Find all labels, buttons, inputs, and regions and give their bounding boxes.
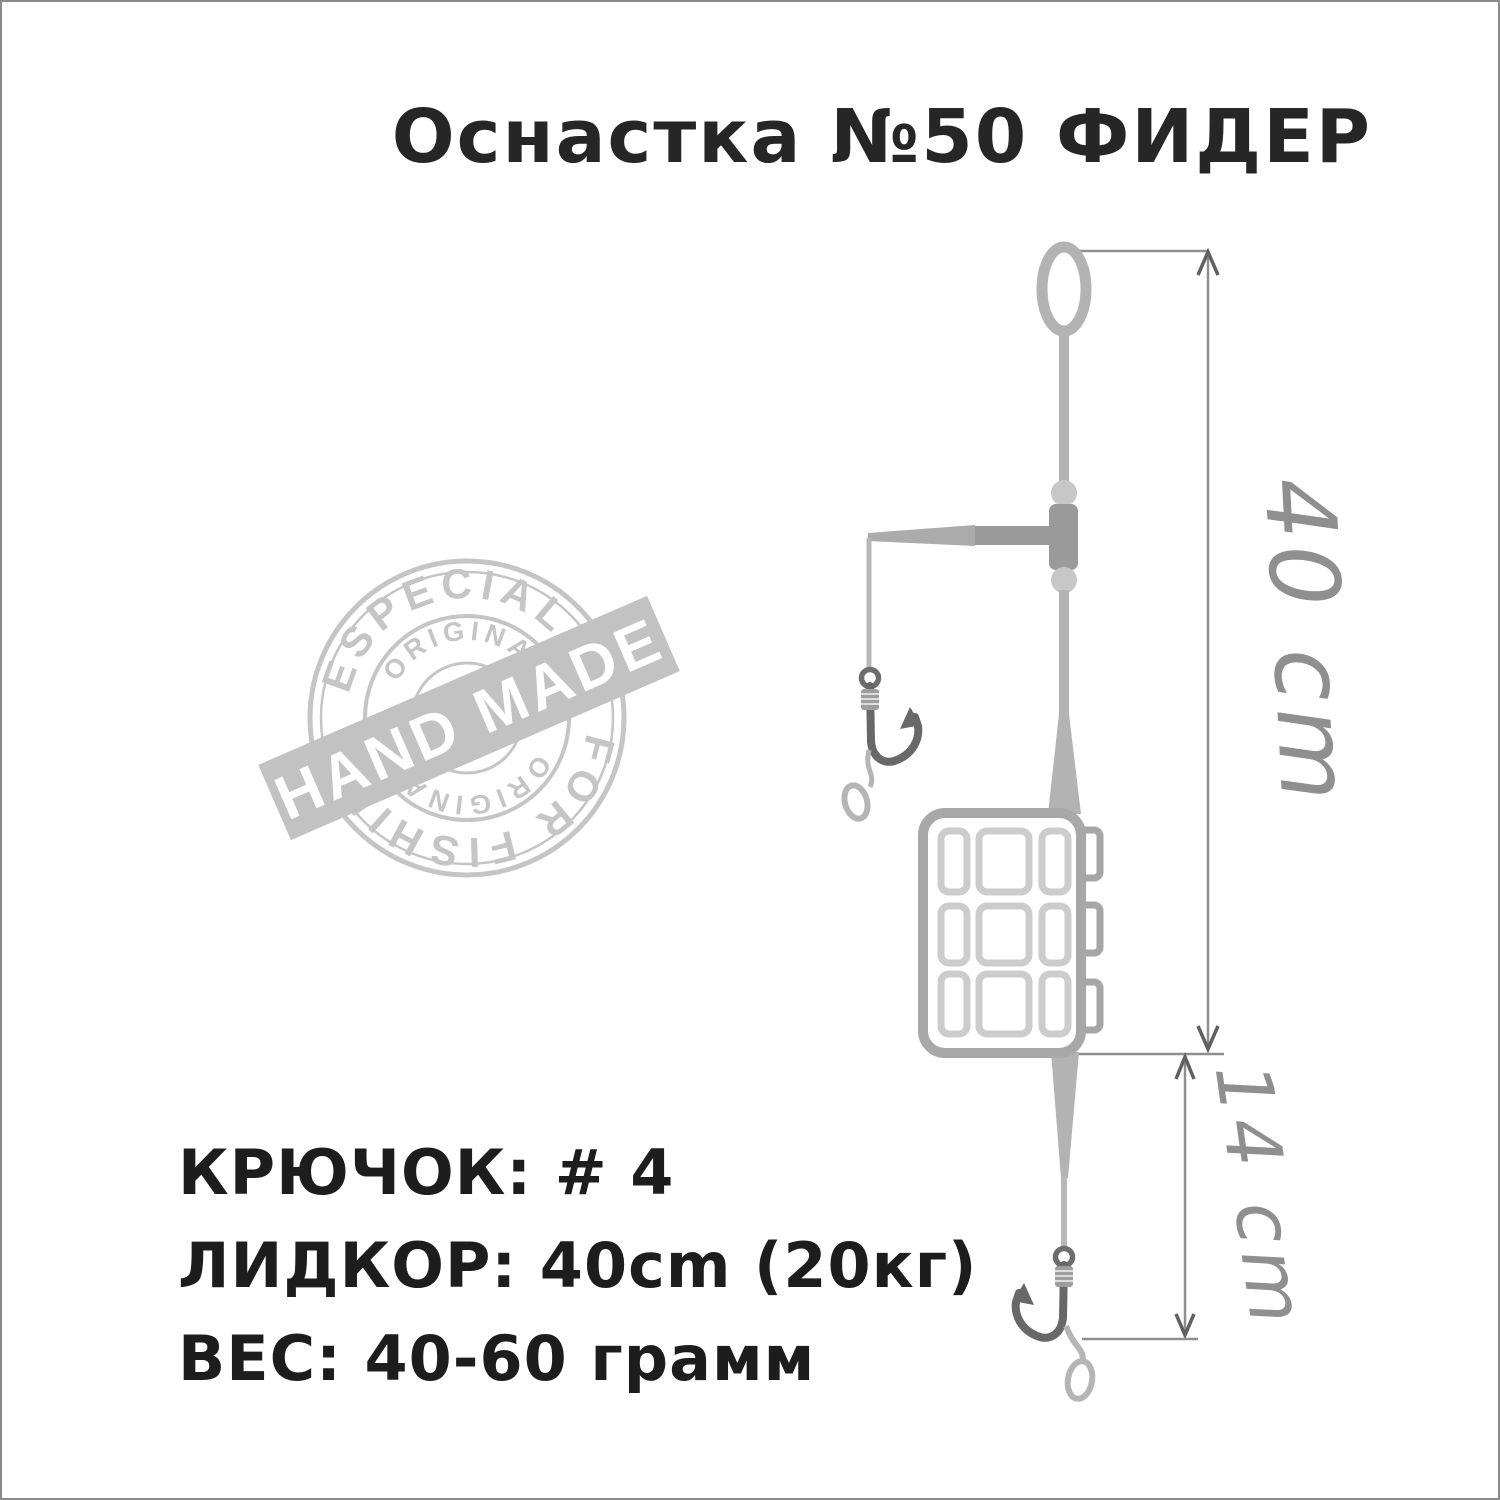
handmade-stamp: ESPECIALLY FOR FISHING ORIGINAL ORIGINAL… (258, 559, 680, 876)
stop-bead-upper (1051, 480, 1077, 506)
sleeve-upper (1048, 714, 1081, 814)
lower-hair (1066, 1326, 1083, 1362)
rig-diagram: ESPECIALLY FOR FISHING ORIGINAL ORIGINAL… (2, 2, 1500, 1500)
upper-hair (868, 750, 872, 787)
dimension-14cm-label: 14 cm (1198, 1058, 1323, 1334)
top-loop (1042, 247, 1086, 331)
lower-hook (1013, 1249, 1095, 1401)
method-feeder (923, 813, 1100, 1053)
lower-hair-loop (1065, 1359, 1095, 1401)
sleeve-lower (1051, 1052, 1079, 1178)
boom-arm-taper (868, 525, 975, 546)
dimension-40cm-label: 40 cm (1242, 475, 1371, 809)
upper-hook (841, 670, 921, 822)
product-diagram-page: Оснастка №50 ФИДЕР КРЮЧОК: # 4 ЛИДКОР: 4… (0, 0, 1500, 1500)
stop-bead-lower (1051, 567, 1077, 593)
upper-hair-loop (841, 783, 872, 822)
boom-arm (975, 526, 1057, 545)
feeder-body (923, 813, 1081, 1053)
